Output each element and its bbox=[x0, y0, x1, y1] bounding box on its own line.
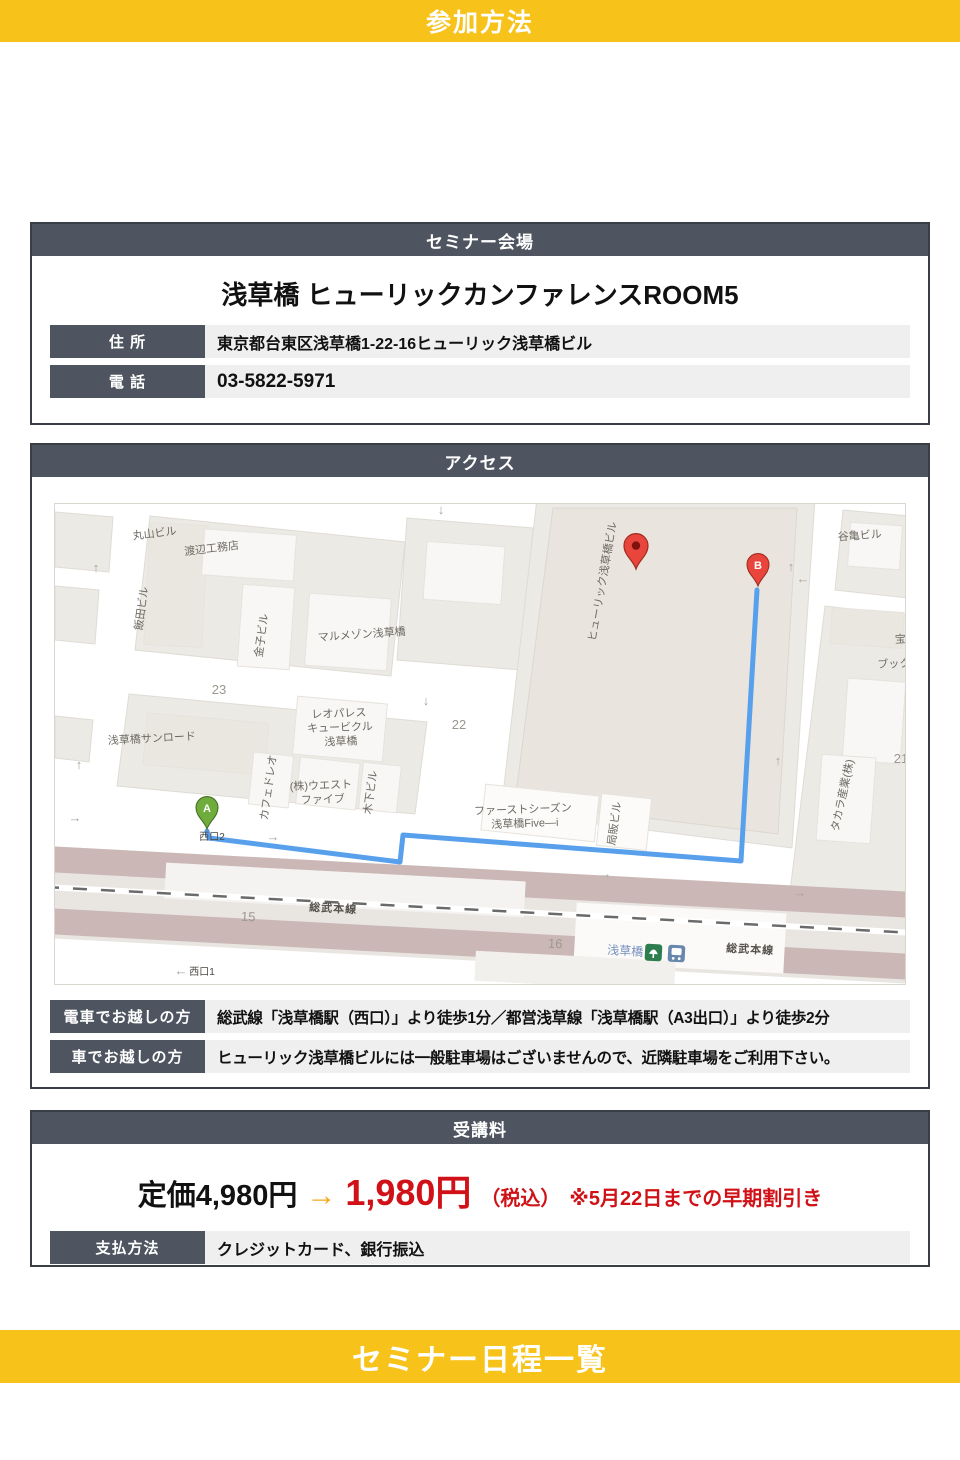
map-label: ↑ bbox=[76, 757, 83, 772]
map-label: → bbox=[267, 829, 280, 844]
map-label: → bbox=[794, 885, 807, 900]
address-label: 住 所 bbox=[50, 325, 205, 358]
fee-section-header: 受講料 bbox=[32, 1112, 928, 1144]
map-label: → bbox=[599, 866, 612, 881]
car-access-label: 車でお越しの方 bbox=[50, 1040, 205, 1073]
map-label: ← bbox=[797, 571, 810, 586]
payment-label: 支払方法 bbox=[50, 1231, 205, 1264]
pin-a-letter: A bbox=[203, 803, 211, 815]
map-label: ファイブ bbox=[301, 791, 345, 807]
regular-price: 定価4,980円 bbox=[138, 1172, 298, 1214]
train-access-value: 総武線「浅草橋駅（西口）」より徒歩1分／都営浅草線「浅草橋駅（A3出口）」より徒… bbox=[205, 1000, 910, 1033]
tax-note: （税込） bbox=[480, 1182, 560, 1211]
map-label: ↓ bbox=[423, 693, 430, 708]
map-label: 浅草橋 bbox=[607, 943, 644, 959]
top-banner-label: 参加方法 bbox=[426, 3, 534, 39]
map-svg: A B 丸山ビル渡辺工務店飯田ビル金子ビルマルメ bbox=[55, 504, 905, 984]
map-label: ↑ bbox=[775, 753, 782, 768]
discount-price: 1,980円 bbox=[345, 1164, 471, 1216]
map-label: 16 bbox=[548, 936, 563, 952]
map-label: キュービクル bbox=[307, 720, 373, 735]
access-map: A B 丸山ビル渡辺工務店飯田ビル金子ビルマルメ bbox=[54, 503, 906, 985]
map-label: 22 bbox=[452, 717, 466, 732]
phone-label: 電 話 bbox=[50, 365, 205, 398]
access-header-label: アクセス bbox=[444, 449, 515, 474]
price-arrow-icon: → bbox=[306, 1179, 336, 1213]
pin-b-letter: B bbox=[754, 560, 762, 572]
map-label: → bbox=[69, 810, 82, 825]
payment-value: クレジットカード、銀行振込 bbox=[205, 1231, 910, 1264]
map-label: 15 bbox=[241, 909, 256, 925]
map-label: レオパレス bbox=[311, 706, 366, 721]
start-pin-a-icon: A bbox=[196, 797, 218, 829]
bottom-banner: セミナー日程一覧 bbox=[0, 1330, 960, 1383]
car-access-value: ヒューリック浅草橋ビルには一般駐車場はございませんので、近隣駐車場をご利用下さい… bbox=[205, 1040, 910, 1073]
top-banner: 参加方法 bbox=[0, 0, 960, 42]
map-label: 21 bbox=[894, 751, 905, 766]
deadline-note: ※5月22日までの早期割引き bbox=[569, 1182, 822, 1211]
venue-address-row: 住 所 東京都台東区浅草橋1-22-16ヒューリック浅草橋ビル bbox=[50, 325, 910, 358]
price-line: 定価4,980円 → 1,980円 （税込） ※5月22日までの早期割引き bbox=[32, 1164, 928, 1216]
map-label: 23 bbox=[212, 682, 226, 697]
access-train-row: 電車でお越しの方 総武線「浅草橋駅（西口）」より徒歩1分／都営浅草線「浅草橋駅（… bbox=[50, 1000, 910, 1033]
fee-header-label: 受講料 bbox=[453, 1116, 507, 1141]
payment-row: 支払方法 クレジットカード、銀行振込 bbox=[50, 1231, 910, 1264]
access-section: アクセス bbox=[30, 443, 930, 1089]
toei-subway-icon bbox=[645, 944, 663, 962]
address-value: 東京都台東区浅草橋1-22-16ヒューリック浅草橋ビル bbox=[205, 325, 910, 358]
venue-header-label: セミナー会場 bbox=[426, 228, 534, 253]
fee-section: 受講料 定価4,980円 → 1,980円 （税込） ※5月22日までの早期割引… bbox=[30, 1110, 930, 1267]
phone-value: 03-5822-5971 bbox=[205, 365, 910, 398]
map-label: 西口2 bbox=[199, 832, 225, 843]
venue-phone-row: 電 話 03-5822-5971 bbox=[50, 365, 910, 398]
access-section-header: アクセス bbox=[32, 445, 928, 477]
access-car-row: 車でお越しの方 ヒューリック浅草橋ビルには一般駐車場はございませんので、近隣駐車… bbox=[50, 1040, 910, 1073]
map-label: 浅草橋 bbox=[324, 733, 357, 748]
venue-title: 浅草橋 ヒューリックカンファレンスROOM5 bbox=[32, 275, 928, 312]
venue-section-header: セミナー会場 bbox=[32, 224, 928, 256]
map-label: ↑ bbox=[93, 560, 100, 575]
train-access-label: 電車でお越しの方 bbox=[50, 1000, 205, 1033]
map-label: ↑ bbox=[788, 559, 795, 574]
map-label: 西口1 bbox=[189, 967, 215, 978]
map-label: ← bbox=[175, 963, 188, 978]
map-label: ↓ bbox=[438, 504, 445, 517]
bottom-banner-label: セミナー日程一覧 bbox=[352, 1335, 608, 1379]
venue-section: セミナー会場 浅草橋 ヒューリックカンファレンスROOM5 住 所 東京都台東区… bbox=[30, 222, 930, 425]
jr-train-icon bbox=[668, 945, 686, 963]
